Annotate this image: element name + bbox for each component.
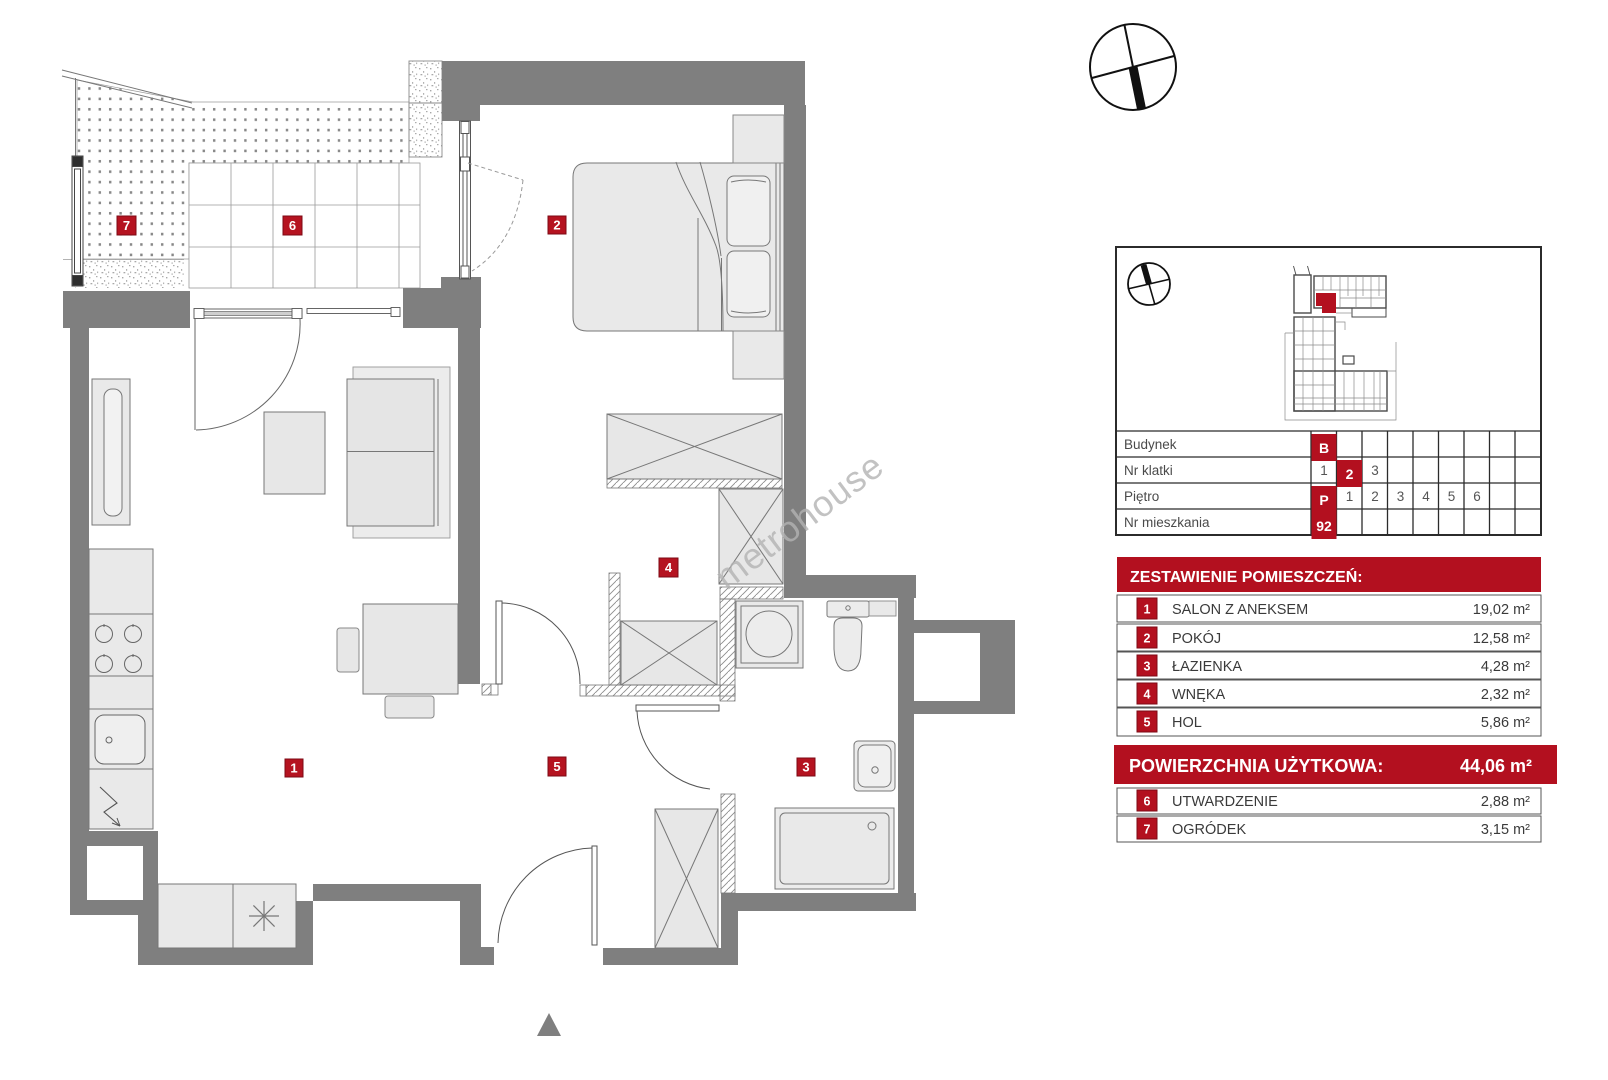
svg-text:Nr klatki: Nr klatki	[1124, 463, 1173, 478]
svg-text:4: 4	[1422, 489, 1430, 504]
svg-text:4: 4	[665, 560, 673, 575]
svg-text:2,32 m²: 2,32 m²	[1481, 687, 1530, 703]
svg-text:POKÓJ: POKÓJ	[1172, 630, 1221, 647]
svg-text:WNĘKA: WNĘKA	[1172, 687, 1226, 703]
svg-text:3: 3	[1144, 660, 1151, 674]
svg-text:UTWARDZENIE: UTWARDZENIE	[1172, 794, 1278, 810]
svg-text:Piętro: Piętro	[1124, 489, 1159, 504]
svg-text:1: 1	[1144, 603, 1151, 617]
svg-text:7: 7	[1144, 823, 1151, 837]
svg-text:P: P	[1319, 492, 1328, 508]
svg-text:6: 6	[289, 218, 296, 233]
svg-text:4: 4	[1144, 688, 1151, 702]
svg-text:POWIERZCHNIA UŻYTKOWA:: POWIERZCHNIA UŻYTKOWA:	[1129, 756, 1383, 776]
svg-text:3: 3	[802, 760, 809, 775]
svg-text:1: 1	[1320, 463, 1328, 478]
svg-text:5,86 m²: 5,86 m²	[1481, 715, 1530, 731]
svg-text:SALON Z ANEKSEM: SALON Z ANEKSEM	[1172, 602, 1308, 618]
svg-text:6: 6	[1473, 489, 1481, 504]
svg-text:2: 2	[553, 218, 560, 233]
svg-text:1: 1	[1346, 489, 1354, 504]
svg-text:92: 92	[1316, 518, 1332, 534]
svg-text:12,58 m²: 12,58 m²	[1473, 631, 1530, 647]
svg-text:5: 5	[1448, 489, 1456, 504]
svg-text:5: 5	[553, 759, 560, 774]
svg-text:OGRÓDEK: OGRÓDEK	[1172, 821, 1246, 838]
svg-text:Nr mieszkania: Nr mieszkania	[1124, 515, 1210, 530]
svg-text:B: B	[1319, 440, 1329, 456]
svg-text:6: 6	[1144, 795, 1151, 809]
svg-text:2: 2	[1144, 632, 1151, 646]
svg-text:1: 1	[290, 761, 297, 776]
svg-text:Budynek: Budynek	[1124, 437, 1177, 452]
svg-text:19,02 m²: 19,02 m²	[1473, 602, 1530, 618]
svg-text:7: 7	[123, 218, 130, 233]
svg-text:2: 2	[1371, 489, 1379, 504]
svg-text:3: 3	[1397, 489, 1405, 504]
svg-text:4,28 m²: 4,28 m²	[1481, 659, 1530, 675]
svg-text:ŁAZIENKA: ŁAZIENKA	[1172, 659, 1242, 675]
svg-text:2,88 m²: 2,88 m²	[1481, 794, 1530, 810]
svg-text:3: 3	[1371, 463, 1379, 478]
svg-text:2: 2	[1346, 466, 1354, 482]
svg-text:44,06 m²: 44,06 m²	[1460, 756, 1532, 776]
svg-text:HOL: HOL	[1172, 715, 1202, 731]
svg-text:5: 5	[1144, 716, 1151, 730]
svg-text:ZESTAWIENIE POMIESZCZEŃ:: ZESTAWIENIE POMIESZCZEŃ:	[1130, 567, 1363, 586]
svg-text:3,15 m²: 3,15 m²	[1481, 822, 1530, 838]
